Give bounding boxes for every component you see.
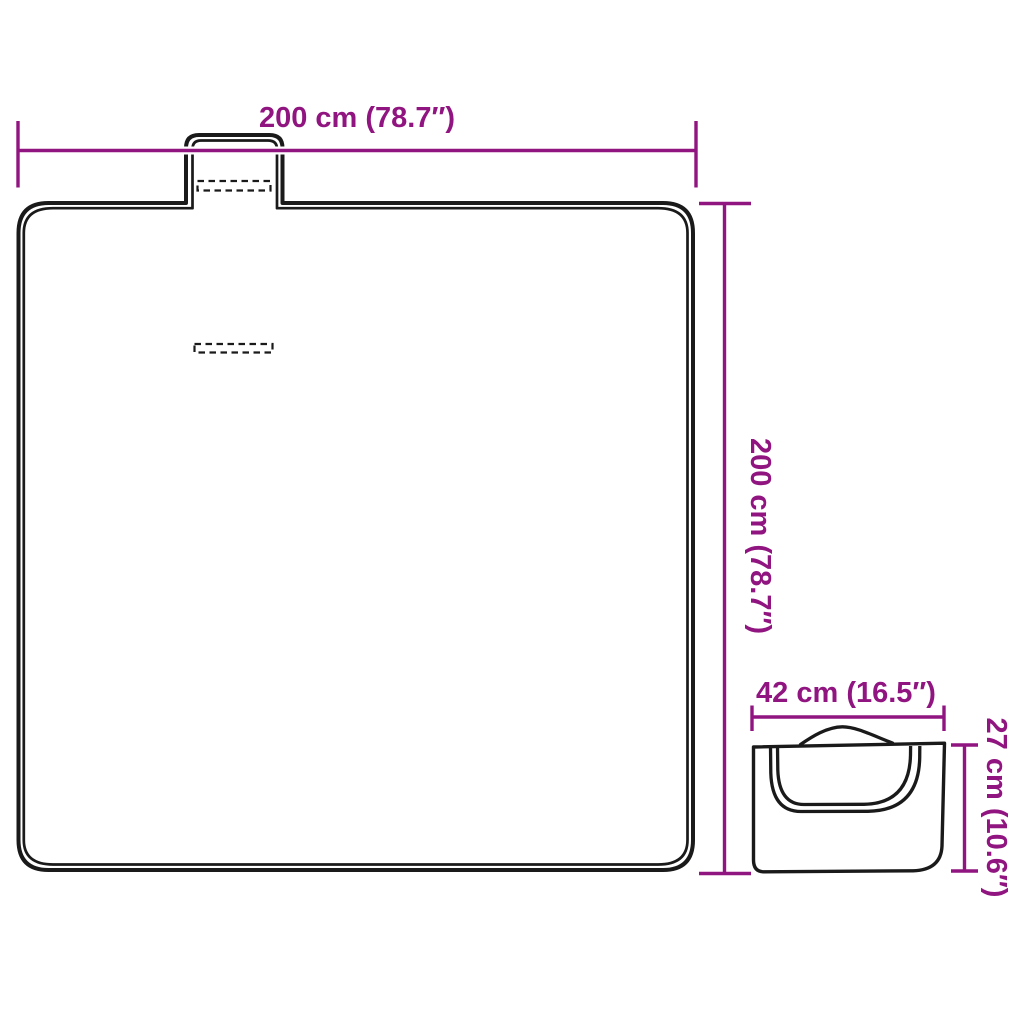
svg-text:42 cm (16.5″): 42 cm (16.5″)	[756, 677, 936, 709]
svg-text:27 cm (10.6″): 27 cm (10.6″)	[980, 718, 1012, 898]
svg-text:200 cm (78.7″): 200 cm (78.7″)	[744, 438, 776, 634]
svg-text:200 cm (78.7″): 200 cm (78.7″)	[259, 102, 455, 134]
